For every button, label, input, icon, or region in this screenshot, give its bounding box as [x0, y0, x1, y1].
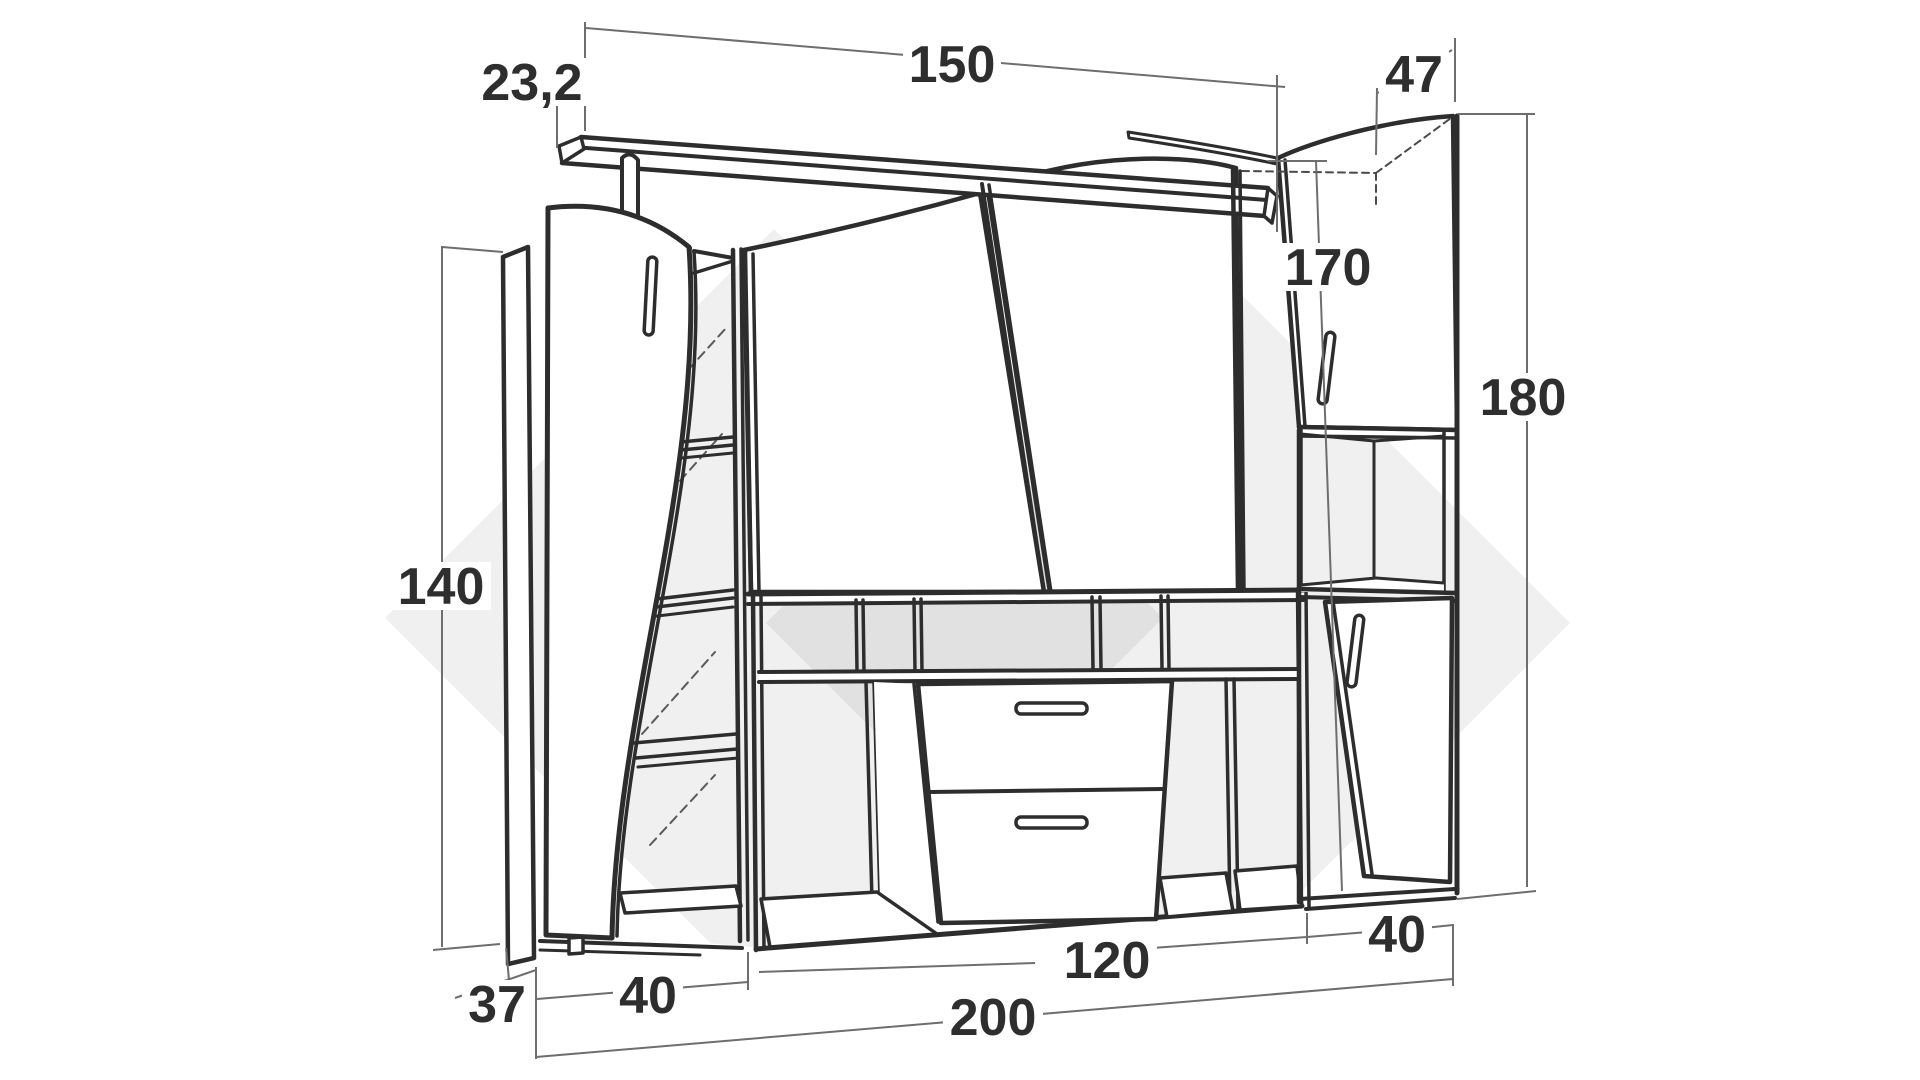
svg-text:170: 170	[1285, 239, 1372, 297]
svg-text:140: 140	[398, 558, 485, 616]
svg-text:150: 150	[909, 36, 996, 94]
svg-text:40: 40	[619, 967, 677, 1025]
svg-text:120: 120	[1064, 932, 1151, 990]
svg-text:200: 200	[950, 989, 1037, 1047]
svg-text:47: 47	[1385, 46, 1443, 104]
svg-text:180: 180	[1480, 369, 1567, 427]
svg-text:40: 40	[1368, 906, 1426, 964]
svg-text:23,2: 23,2	[481, 54, 582, 112]
svg-text:37: 37	[468, 976, 526, 1034]
